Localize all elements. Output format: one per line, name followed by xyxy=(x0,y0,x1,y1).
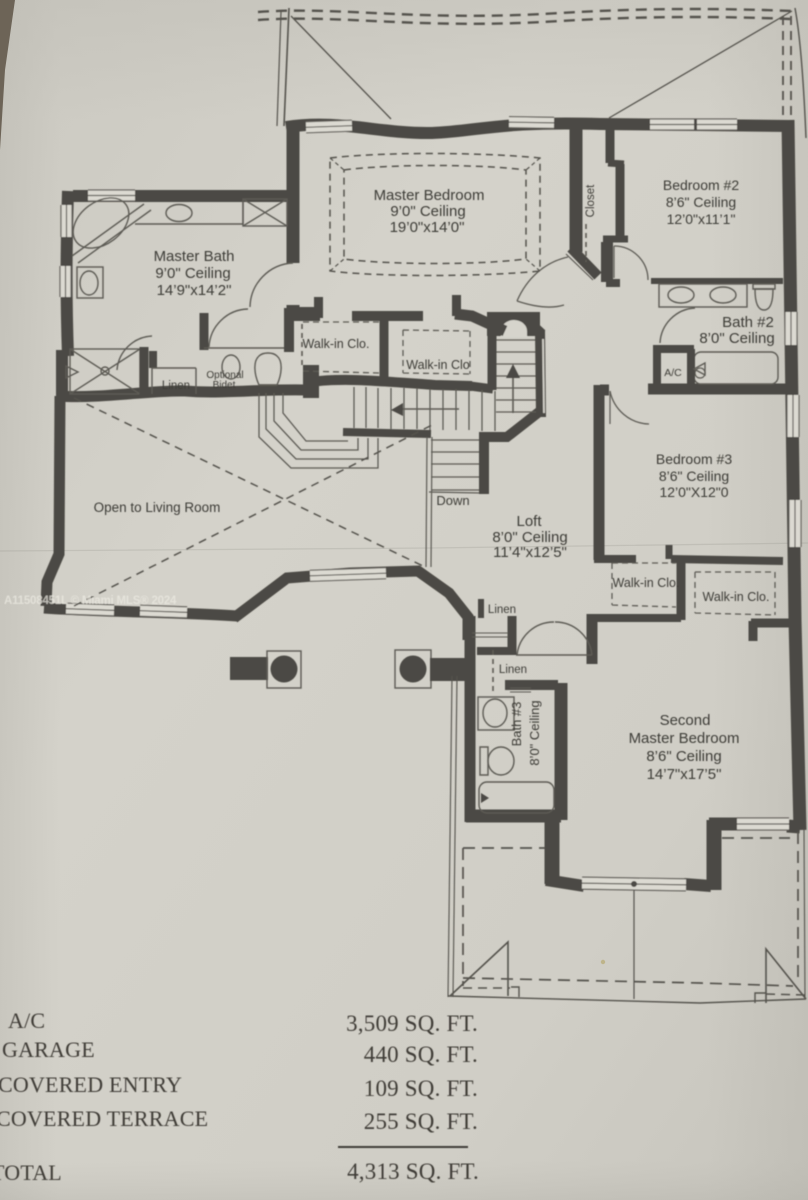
svg-text:COVERED ENTRY: COVERED ENTRY xyxy=(0,1072,182,1097)
svg-text:8’6" Ceiling: 8’6" Ceiling xyxy=(666,194,736,210)
svg-text:Master Bath: Master Bath xyxy=(154,248,235,265)
svg-text:9’0" Ceiling: 9’0" Ceiling xyxy=(390,203,465,220)
svg-text:Bedroom #2: Bedroom #2 xyxy=(663,177,739,193)
svg-text:Down: Down xyxy=(436,493,469,508)
svg-text:Linen: Linen xyxy=(488,604,516,616)
svg-text:4,313 SQ. FT.: 4,313 SQ. FT. xyxy=(347,1159,479,1184)
svg-text:Bidet: Bidet xyxy=(213,380,236,391)
svg-text:109 SQ. FT.: 109 SQ. FT. xyxy=(364,1076,478,1101)
svg-text:11’4"x12’5": 11’4"x12’5" xyxy=(493,544,567,561)
svg-text:8’0" Ceiling: 8’0" Ceiling xyxy=(527,700,542,765)
svg-text:A/C: A/C xyxy=(8,1008,45,1033)
svg-text:Bath #3: Bath #3 xyxy=(509,702,524,747)
svg-text:Walk-in Clo.: Walk-in Clo. xyxy=(303,337,370,351)
svg-text:8’6" Ceiling: 8’6" Ceiling xyxy=(659,468,729,484)
svg-text:Loft: Loft xyxy=(516,513,542,530)
svg-text:TOTAL: TOTAL xyxy=(0,1160,62,1185)
svg-text:Master Bedroom: Master Bedroom xyxy=(374,187,485,204)
svg-text:255 SQ. FT.: 255 SQ. FT. xyxy=(364,1109,478,1134)
svg-text:Walk-in Clo: Walk-in Clo xyxy=(406,358,469,372)
svg-text:Master Bedroom: Master Bedroom xyxy=(629,730,740,747)
svg-text:12’0"X12"0: 12’0"X12"0 xyxy=(659,484,728,500)
svg-text:Second: Second xyxy=(660,712,711,729)
svg-text:Closet: Closet xyxy=(585,184,597,217)
svg-text:9’0" Ceiling: 9’0" Ceiling xyxy=(155,265,230,282)
svg-text:8’6" Ceiling: 8’6" Ceiling xyxy=(646,748,721,765)
svg-text:8’0" Ceiling: 8’0" Ceiling xyxy=(699,330,774,347)
svg-text:A11508451L © Miami MLS® 2024: A11508451L © Miami MLS® 2024 xyxy=(4,595,177,607)
svg-text:Linen: Linen xyxy=(499,664,527,676)
svg-text:Linen: Linen xyxy=(162,380,190,392)
svg-text:Bedroom #3: Bedroom #3 xyxy=(656,451,732,467)
svg-text:Walk-in Clo.: Walk-in Clo. xyxy=(703,590,770,604)
svg-text:440 SQ. FT.: 440 SQ. FT. xyxy=(364,1042,478,1067)
svg-text:Walk-in Clo.: Walk-in Clo. xyxy=(613,576,680,590)
svg-text:A/C: A/C xyxy=(664,367,682,379)
svg-text:19’0"x14’0": 19’0"x14’0" xyxy=(390,219,465,236)
svg-text:14’9"x14’2": 14’9"x14’2" xyxy=(157,282,232,299)
svg-text:Open to Living Room: Open to Living Room xyxy=(94,500,221,515)
svg-text:14’7"x17’5": 14’7"x17’5" xyxy=(647,766,722,783)
svg-text:12’0"x11’1": 12’0"x11’1" xyxy=(667,211,736,227)
svg-text:COVERED TERRACE: COVERED TERRACE xyxy=(0,1106,208,1131)
svg-text:3,509 SQ. FT.: 3,509 SQ. FT. xyxy=(346,1011,478,1036)
svg-text:Bath #2: Bath #2 xyxy=(722,314,774,331)
svg-text:GARAGE: GARAGE xyxy=(2,1037,95,1062)
